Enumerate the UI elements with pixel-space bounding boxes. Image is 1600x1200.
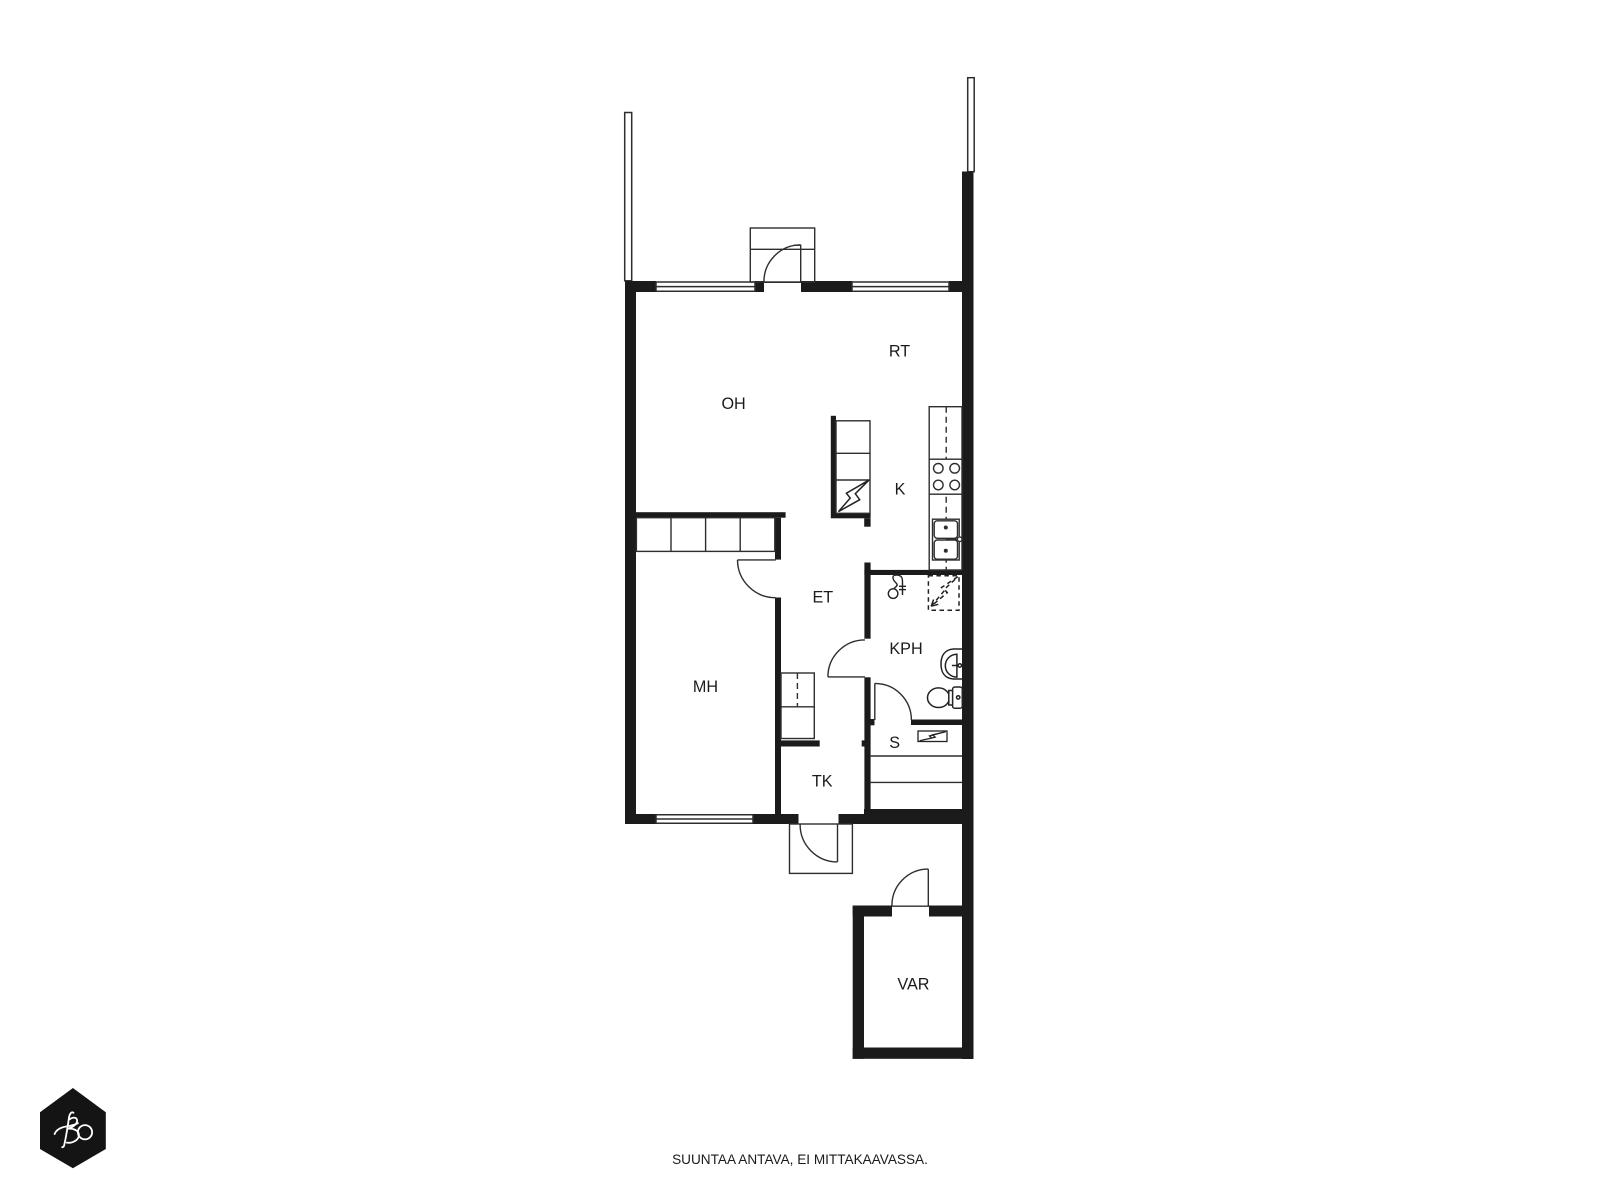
- svg-text:SUUNTAA ANTAVA, EI MITTAKAAVAS: SUUNTAA ANTAVA, EI MITTAKAAVASSA.: [672, 1152, 928, 1167]
- svg-text:RT: RT: [889, 342, 910, 360]
- svg-text:K: K: [895, 481, 906, 499]
- svg-text:VAR: VAR: [897, 975, 929, 993]
- svg-text:TK: TK: [812, 772, 833, 790]
- svg-text:ET: ET: [812, 588, 833, 606]
- svg-text:OH: OH: [721, 395, 745, 413]
- svg-text:S: S: [889, 734, 900, 752]
- svg-text:MH: MH: [693, 678, 718, 696]
- svg-text:KPH: KPH: [889, 640, 922, 658]
